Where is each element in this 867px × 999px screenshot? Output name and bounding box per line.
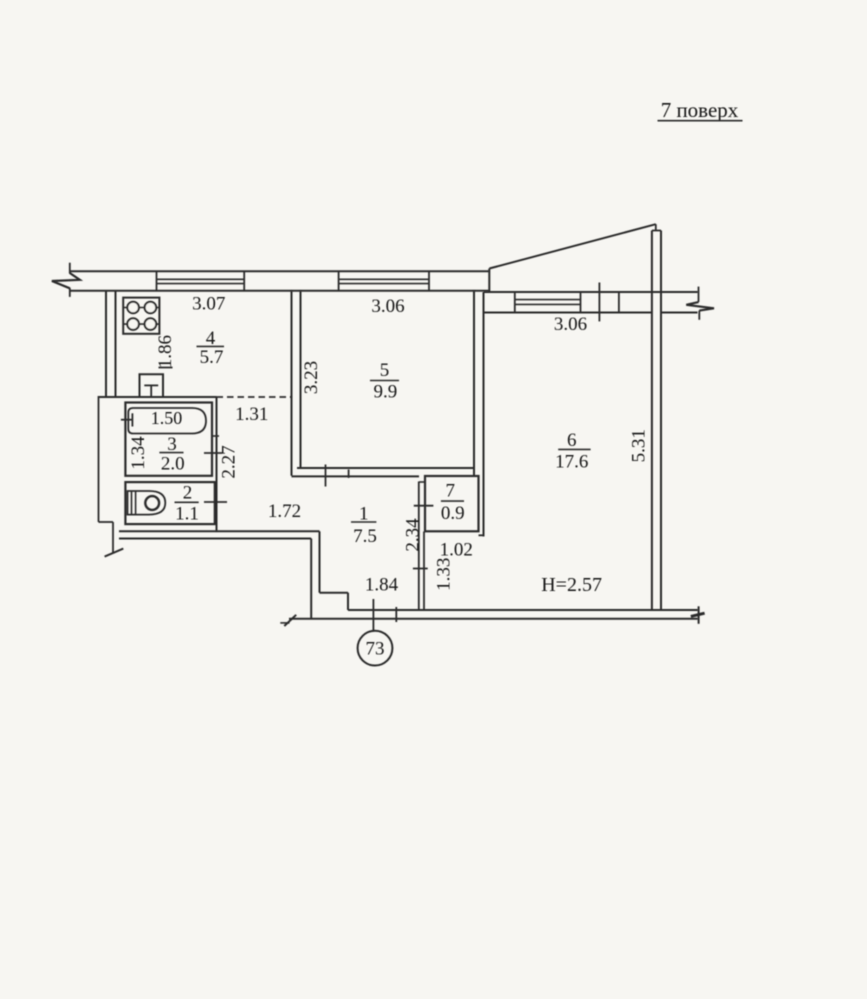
svg-text:1.31: 1.31 (235, 404, 268, 425)
svg-text:2: 2 (183, 483, 193, 504)
svg-text:7 поверх: 7 поверх (661, 98, 739, 122)
svg-text:3.23: 3.23 (301, 361, 322, 394)
svg-text:1.84: 1.84 (365, 574, 399, 595)
svg-text:9.9: 9.9 (374, 382, 398, 403)
svg-text:1.02: 1.02 (440, 540, 473, 561)
svg-text:1.34: 1.34 (128, 436, 149, 470)
svg-text:5.31: 5.31 (629, 429, 650, 462)
svg-text:2.27: 2.27 (218, 445, 239, 478)
svg-text:2.0: 2.0 (161, 454, 185, 475)
svg-text:0.9: 0.9 (441, 503, 465, 524)
svg-text:3.06: 3.06 (554, 314, 587, 335)
svg-text:1.50: 1.50 (151, 408, 183, 428)
svg-text:5.7: 5.7 (200, 347, 224, 368)
svg-text:17.6: 17.6 (555, 451, 588, 472)
svg-text:2.34: 2.34 (402, 518, 423, 552)
svg-text:3.06: 3.06 (371, 296, 404, 317)
svg-text:7: 7 (446, 481, 456, 502)
svg-text:6: 6 (567, 430, 577, 451)
svg-text:1.86: 1.86 (155, 335, 176, 368)
svg-text:3.07: 3.07 (192, 294, 225, 315)
svg-text:1.33: 1.33 (434, 558, 455, 591)
svg-text:73: 73 (366, 638, 385, 659)
svg-text:1.72: 1.72 (268, 501, 301, 522)
svg-text:7.5: 7.5 (353, 526, 377, 547)
svg-text:H=2.57: H=2.57 (541, 574, 602, 596)
svg-text:5: 5 (380, 360, 390, 381)
svg-text:1.1: 1.1 (175, 503, 199, 524)
svg-text:1: 1 (359, 503, 369, 524)
